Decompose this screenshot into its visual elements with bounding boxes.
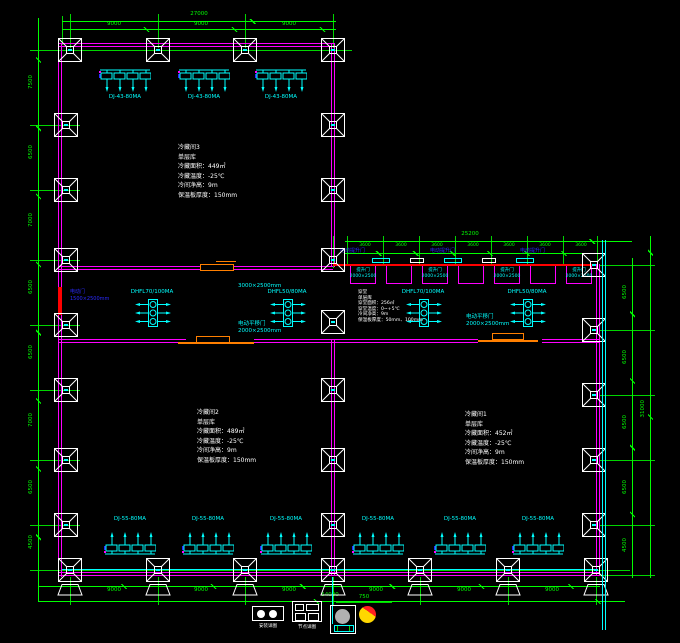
dim-label: 4500 xyxy=(622,538,628,552)
wall xyxy=(58,43,335,47)
equipment-label: DJ-55-80MA xyxy=(428,516,492,523)
column xyxy=(320,37,346,67)
dim-line xyxy=(62,27,336,32)
dock-door xyxy=(372,258,390,263)
dim-label: 9000 xyxy=(194,21,208,27)
detail-shape xyxy=(295,604,304,611)
column xyxy=(581,447,607,477)
legend-detail-3 xyxy=(330,605,356,634)
dock-bay xyxy=(386,266,412,284)
sliding-door xyxy=(492,333,524,340)
room-info-line: 冷间净高：9m xyxy=(197,446,256,456)
dim-label: 9000 xyxy=(194,587,208,593)
door-label: 1500×2500mm xyxy=(70,296,109,302)
dim-line xyxy=(36,18,41,602)
dock-door xyxy=(410,258,424,263)
detail-shape xyxy=(295,613,306,621)
column xyxy=(53,312,79,342)
dim-label: 6500 xyxy=(622,480,628,494)
column xyxy=(320,112,346,142)
dim-label: 6500 xyxy=(622,415,628,429)
column xyxy=(53,377,79,407)
column xyxy=(320,557,346,601)
dim-label: 9000 xyxy=(545,587,559,593)
equipment-label: DJ-43-80MA xyxy=(93,94,157,101)
room-info-line: 单层库 xyxy=(178,153,237,163)
column xyxy=(53,447,79,477)
dim-label: 6500 xyxy=(28,480,34,494)
room-info-line: 冷藏面积：452㎡ xyxy=(465,429,524,439)
evaporator-icon xyxy=(104,524,156,556)
equipment-label: DJ-55-80MA xyxy=(176,516,240,523)
wall xyxy=(234,266,333,270)
air-cooler-icon xyxy=(265,298,309,332)
dock-door-label: 电动提升门 xyxy=(430,248,455,254)
dim-label: 9000 xyxy=(107,21,121,27)
detail-mark xyxy=(337,626,338,631)
dim-label: 7000 xyxy=(28,413,34,427)
wall xyxy=(254,339,478,343)
room-info-line: 冷藏间1 xyxy=(465,410,524,420)
dock-bay xyxy=(458,266,484,284)
room-info-line: 冷间净高：9m xyxy=(465,448,524,458)
column xyxy=(581,382,607,412)
dim-label: 7000 xyxy=(28,213,34,227)
column xyxy=(53,512,79,542)
room-info-line: 冷藏间2 xyxy=(197,408,256,418)
dim-label: 3600 xyxy=(575,243,586,249)
dim-line xyxy=(336,602,392,603)
column xyxy=(53,112,79,142)
dock-bay-label: 2000×2500 xyxy=(494,274,521,281)
equipment-label: DHFL70/100MA xyxy=(122,289,182,296)
evaporator-icon xyxy=(434,524,486,556)
dim-line xyxy=(345,239,632,244)
dim-label: 750 xyxy=(359,594,370,600)
column xyxy=(495,557,521,601)
column xyxy=(145,557,171,601)
equipment-label: DJ-55-80MA xyxy=(254,516,318,523)
equipment-label: DHFL50/80MA xyxy=(497,289,557,296)
legend-detail-2 xyxy=(292,601,322,622)
dim-label: 3600 xyxy=(467,243,478,249)
equipment-label: DJ-55-80MA xyxy=(506,516,570,523)
column xyxy=(581,317,607,347)
door-label: 电动平移门 xyxy=(238,321,266,328)
column xyxy=(320,377,346,407)
dock-bay-label: 2000×2500 xyxy=(422,274,449,281)
dock-door xyxy=(444,258,462,263)
column xyxy=(320,447,346,477)
column xyxy=(232,557,258,601)
legend-detail-1 xyxy=(252,606,284,621)
column xyxy=(320,247,346,277)
wall xyxy=(58,266,200,270)
logo-circle xyxy=(359,606,376,623)
room-info-line: 单层库 xyxy=(465,420,524,430)
room-info-line: 冷藏间3 xyxy=(178,143,237,153)
room-info-line: 单层库 xyxy=(197,418,256,428)
equipment-label: DJ-43-80MA xyxy=(172,94,236,101)
room-info-3: 冷藏间3 单层库 冷藏面积：449㎡ 冷藏温度：-25℃ 冷间净高：9m 保温板… xyxy=(178,143,237,200)
dock-bay xyxy=(530,266,556,284)
room-info-line: 保温板厚度：150mm xyxy=(178,191,237,201)
wall xyxy=(331,43,335,267)
dim-label: 9000 xyxy=(369,587,383,593)
sliding-door xyxy=(478,340,538,342)
column xyxy=(57,37,83,67)
equipment-label: DJ-43-80MA xyxy=(249,94,313,101)
detail-shape xyxy=(269,610,277,618)
column xyxy=(145,37,171,67)
dim-label: 25200 xyxy=(461,231,479,237)
pipe-line xyxy=(602,240,603,630)
dim-label: 9000 xyxy=(457,587,471,593)
tank-shape xyxy=(335,609,350,624)
column xyxy=(53,247,79,277)
room-info-line: 冷间净高：9m xyxy=(178,181,237,191)
extension-line xyxy=(600,460,655,461)
dim-label: 3600 xyxy=(503,243,514,249)
dock-door-label: 电动提升门 xyxy=(520,248,545,254)
door-label: 电动平移门 xyxy=(466,314,494,321)
room-info-line: 保温板厚度：150mm xyxy=(197,456,256,466)
dim-label: 6500 xyxy=(28,280,34,294)
dock-door xyxy=(482,258,496,263)
evaporator-icon xyxy=(260,524,312,556)
evaporator-icon xyxy=(512,524,564,556)
room-info-line: 冷藏温度：-25℃ xyxy=(197,437,256,447)
room-info-line: 保温板厚度：150mm xyxy=(465,458,524,468)
extension-line xyxy=(600,395,655,396)
equipment-label: DJ-55-80MA xyxy=(98,516,162,523)
dim-label: 9000 xyxy=(107,587,121,593)
door-label: 2000×2500mm xyxy=(466,321,509,328)
room-info-line: 冷藏面积：489㎡ xyxy=(197,427,256,437)
sliding-door xyxy=(200,264,234,271)
detail-shape xyxy=(257,610,265,618)
column xyxy=(320,512,346,542)
dim-label: 27000 xyxy=(190,11,208,17)
column xyxy=(407,557,433,601)
corridor-info: 穿堂 单层库 穿堂面积：256㎡ 穿堂温度：0~+5℃ 冷间净高：9m 保温板厚… xyxy=(358,290,423,324)
detail-shape xyxy=(308,613,319,621)
column xyxy=(581,252,607,282)
air-cooler-icon xyxy=(505,298,549,332)
column xyxy=(581,512,607,542)
equipment-label: DHFL50/80MA xyxy=(257,289,317,296)
dim-label: 6500 xyxy=(28,345,34,359)
room-info-line: 冷藏面积：449㎡ xyxy=(178,162,237,172)
dim-label: 4500 xyxy=(28,535,34,549)
dim-label: 31000 xyxy=(640,400,646,418)
cad-floor-plan: 27000 9000 9000 9000 25200 3600 3600 360… xyxy=(0,0,680,643)
extension-line xyxy=(600,330,655,331)
dim-label: 6500 xyxy=(622,285,628,299)
column xyxy=(320,177,346,207)
dim-label: 9000 xyxy=(282,21,296,27)
sliding-door xyxy=(216,261,236,262)
column xyxy=(320,309,346,339)
dim-label: 9000 xyxy=(282,587,296,593)
sliding-door xyxy=(196,336,230,343)
legend-label: 安装详图 xyxy=(259,624,277,629)
dim-line xyxy=(630,258,635,578)
dim-label: 6500 xyxy=(28,145,34,159)
detail-mark xyxy=(349,626,350,631)
extension-line xyxy=(600,525,655,526)
dim-label: 7500 xyxy=(28,75,34,89)
column xyxy=(57,557,83,601)
room-info-line: 保温板厚度：50mm、100mm xyxy=(358,318,423,324)
evaporator-icon xyxy=(182,524,234,556)
room-info-line: 冷藏温度：-25℃ xyxy=(465,439,524,449)
dock-bay-label: 2000×2500 xyxy=(350,274,377,281)
evaporator-icon xyxy=(352,524,404,556)
column xyxy=(232,37,258,67)
dim-line xyxy=(648,236,653,578)
left-wall-door xyxy=(58,287,62,315)
dock-door xyxy=(516,258,534,263)
dim-label: 6500 xyxy=(622,350,628,364)
legend-label: 节点详图 xyxy=(298,625,316,630)
extension-line xyxy=(600,265,655,266)
room-info-line: 冷藏温度：-25℃ xyxy=(178,172,237,182)
air-cooler-icon xyxy=(130,298,174,332)
dim-line xyxy=(345,251,597,256)
equipment-label: DJ-55-80MA xyxy=(346,516,410,523)
room-info-1: 冷藏间1 单层库 冷藏面积：452㎡ 冷藏温度：-25℃ 冷间净高：9m 保温板… xyxy=(465,410,524,467)
room-info-2: 冷藏间2 单层库 冷藏面积：489㎡ 冷藏温度：-25℃ 冷间净高：9m 保温板… xyxy=(197,408,256,465)
door-label: 电动门 xyxy=(70,289,85,295)
detail-shape xyxy=(306,604,319,611)
pipe-line xyxy=(605,240,606,630)
column xyxy=(53,177,79,207)
dim-label: 3600 xyxy=(395,243,406,249)
